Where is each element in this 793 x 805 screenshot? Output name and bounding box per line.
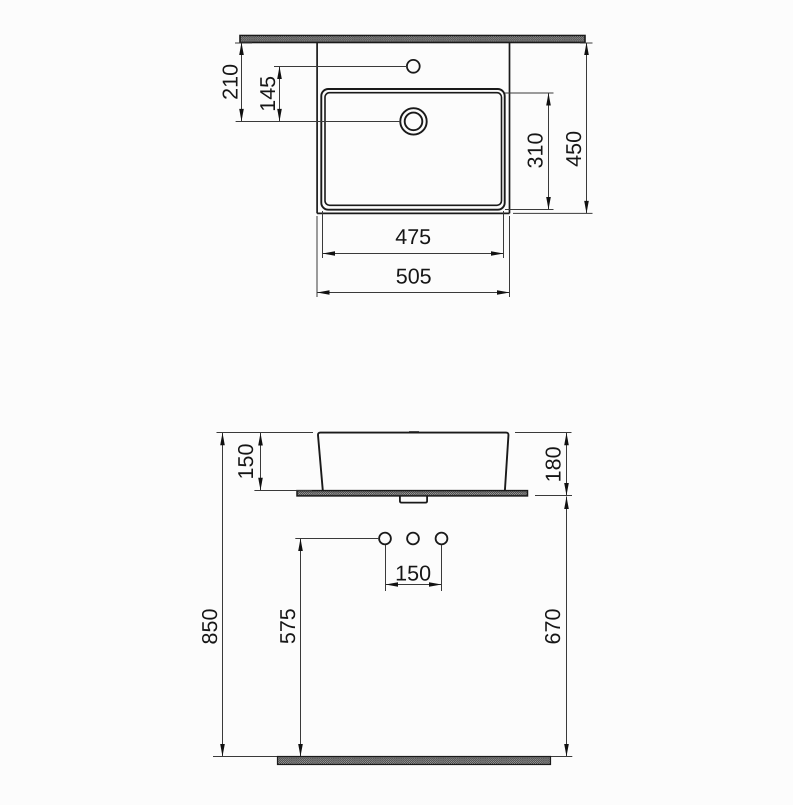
svg-text:310: 310 <box>524 133 548 169</box>
svg-text:670: 670 <box>541 609 565 645</box>
svg-text:180: 180 <box>541 446 565 482</box>
svg-text:150: 150 <box>234 444 258 480</box>
svg-text:150: 150 <box>395 562 431 586</box>
svg-text:450: 450 <box>562 131 586 167</box>
svg-text:145: 145 <box>256 76 280 112</box>
svg-text:475: 475 <box>395 225 431 249</box>
svg-text:505: 505 <box>396 265 432 289</box>
svg-text:575: 575 <box>276 608 300 644</box>
svg-text:850: 850 <box>198 609 222 645</box>
svg-text:210: 210 <box>218 64 242 100</box>
